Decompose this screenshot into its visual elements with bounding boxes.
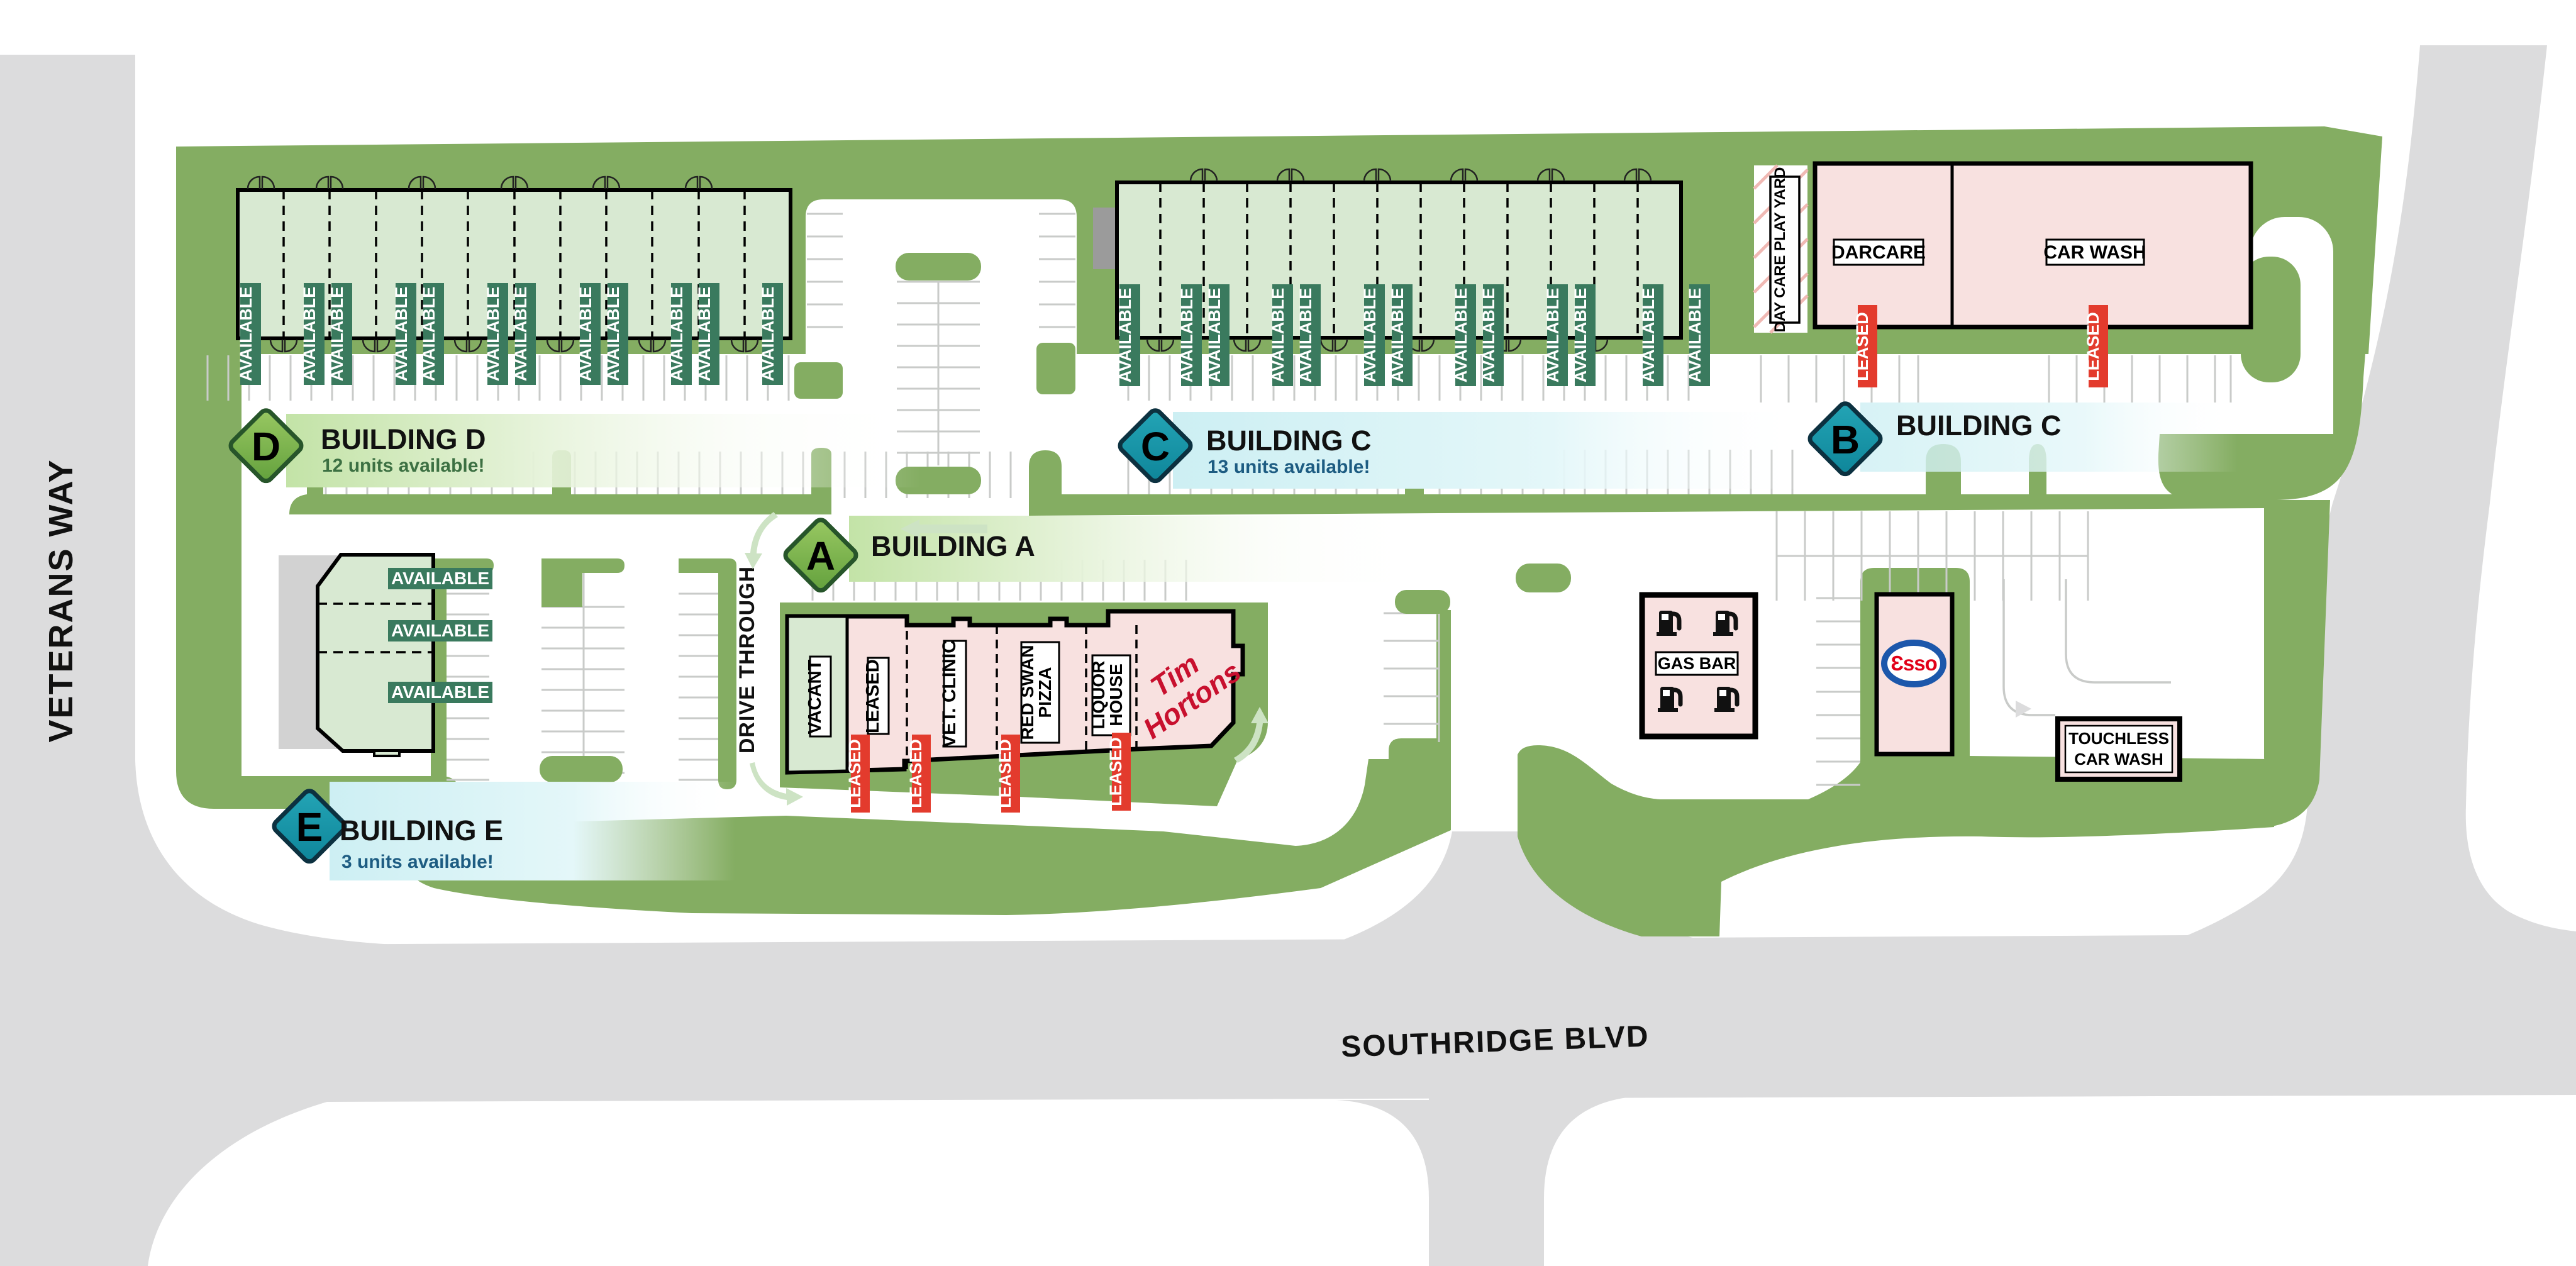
svg-text:AVAILABLE: AVAILABLE (391, 682, 489, 702)
svg-text:AVAILABLE: AVAILABLE (1452, 288, 1470, 383)
svg-text:DAY CARE PLAY YARD: DAY CARE PLAY YARD (1772, 167, 1789, 333)
svg-text:AVAILABLE: AVAILABLE (1479, 288, 1498, 383)
svg-text:C: C (1141, 424, 1170, 469)
svg-text:AVAILABLE: AVAILABLE (419, 287, 438, 382)
svg-text:AVAILABLE: AVAILABLE (511, 287, 530, 382)
svg-text:AVAILABLE: AVAILABLE (1205, 288, 1224, 383)
svg-text:BUILDING D: BUILDING D (321, 423, 486, 455)
svg-text:AVAILABLE: AVAILABLE (1360, 288, 1379, 383)
svg-text:BUILDING E: BUILDING E (340, 814, 503, 847)
svg-text:DRIVE THROUGH: DRIVE THROUGH (735, 566, 759, 753)
svg-text:AVAILABLE: AVAILABLE (328, 287, 347, 382)
svg-text:AVAILABLE: AVAILABLE (391, 621, 489, 640)
svg-text:AVAILABLE: AVAILABLE (1177, 288, 1196, 383)
svg-text:BUILDING A: BUILDING A (871, 530, 1035, 562)
svg-text:PIZZA: PIZZA (1035, 667, 1055, 718)
svg-text:13 units available!: 13 units available! (1207, 457, 1370, 477)
svg-text:RED SWAN: RED SWAN (1018, 645, 1037, 740)
svg-text:VET. CLINIC: VET. CLINIC (939, 640, 960, 748)
svg-text:AVAILABLE: AVAILABLE (1543, 288, 1562, 383)
svg-text:A: A (806, 533, 835, 579)
svg-text:AVAILABLE: AVAILABLE (484, 287, 502, 382)
svg-text:LEASED: LEASED (1853, 312, 1872, 381)
svg-text:BUILDING C: BUILDING C (1896, 409, 2062, 441)
svg-text:AVAILABLE: AVAILABLE (236, 287, 255, 382)
svg-text:AVAILABLE: AVAILABLE (1388, 288, 1407, 383)
svg-text:LEASED: LEASED (996, 739, 1014, 808)
svg-text:AVAILABLE: AVAILABLE (300, 287, 319, 382)
svg-text:AVAILABLE: AVAILABLE (758, 287, 777, 382)
svg-text:AVAILABLE: AVAILABLE (391, 569, 489, 588)
svg-text:LEASED: LEASED (845, 739, 864, 808)
svg-text:LEASED: LEASED (2084, 312, 2102, 381)
svg-text:D: D (252, 424, 280, 469)
svg-text:CAR WASH: CAR WASH (2074, 750, 2163, 769)
svg-text:Ɛsso: Ɛsso (1890, 652, 1937, 675)
svg-text:CAR WASH: CAR WASH (2043, 242, 2146, 263)
svg-text:12 units available!: 12 units available! (322, 455, 484, 476)
svg-text:LIQUOR: LIQUOR (1089, 661, 1108, 730)
svg-text:VETERANS WAY: VETERANS WAY (42, 458, 80, 742)
svg-text:VACANT: VACANT (805, 659, 825, 734)
svg-text:LEASED: LEASED (863, 659, 883, 733)
svg-text:AVAILABLE: AVAILABLE (695, 287, 714, 382)
svg-text:AVAILABLE: AVAILABLE (1296, 288, 1315, 383)
svg-text:AVAILABLE: AVAILABLE (1116, 288, 1135, 383)
svg-text:AVAILABLE: AVAILABLE (1639, 288, 1658, 383)
svg-text:AVAILABLE: AVAILABLE (576, 287, 595, 382)
svg-text:DARCARE: DARCARE (1831, 242, 1926, 263)
svg-text:LEASED: LEASED (1106, 737, 1125, 806)
svg-text:AVAILABLE: AVAILABLE (1571, 288, 1590, 383)
svg-text:AVAILABLE: AVAILABLE (604, 287, 623, 382)
svg-text:GAS BAR: GAS BAR (1658, 654, 1736, 673)
svg-text:BUILDING C: BUILDING C (1206, 425, 1372, 457)
svg-text:AVAILABLE: AVAILABLE (1269, 288, 1287, 383)
svg-text:3 units available!: 3 units available! (341, 852, 494, 872)
svg-text:HOUSE: HOUSE (1106, 664, 1126, 726)
svg-text:B: B (1831, 417, 1860, 462)
svg-text:AVAILABLE: AVAILABLE (667, 287, 686, 382)
svg-text:E: E (296, 804, 323, 850)
svg-text:AVAILABLE: AVAILABLE (1685, 288, 1704, 383)
svg-text:TOUCHLESS: TOUCHLESS (2068, 729, 2169, 748)
svg-text:AVAILABLE: AVAILABLE (392, 287, 411, 382)
svg-text:LEASED: LEASED (906, 739, 925, 808)
